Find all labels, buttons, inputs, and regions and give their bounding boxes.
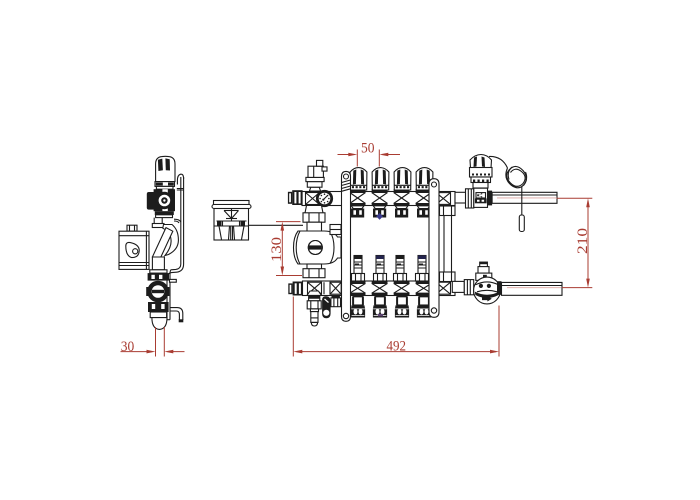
svg-text:30: 30 (121, 339, 135, 355)
svg-text:210: 210 (575, 228, 591, 254)
svg-text:492: 492 (387, 338, 407, 354)
svg-text:50: 50 (361, 141, 375, 157)
svg-text:130: 130 (269, 237, 285, 262)
